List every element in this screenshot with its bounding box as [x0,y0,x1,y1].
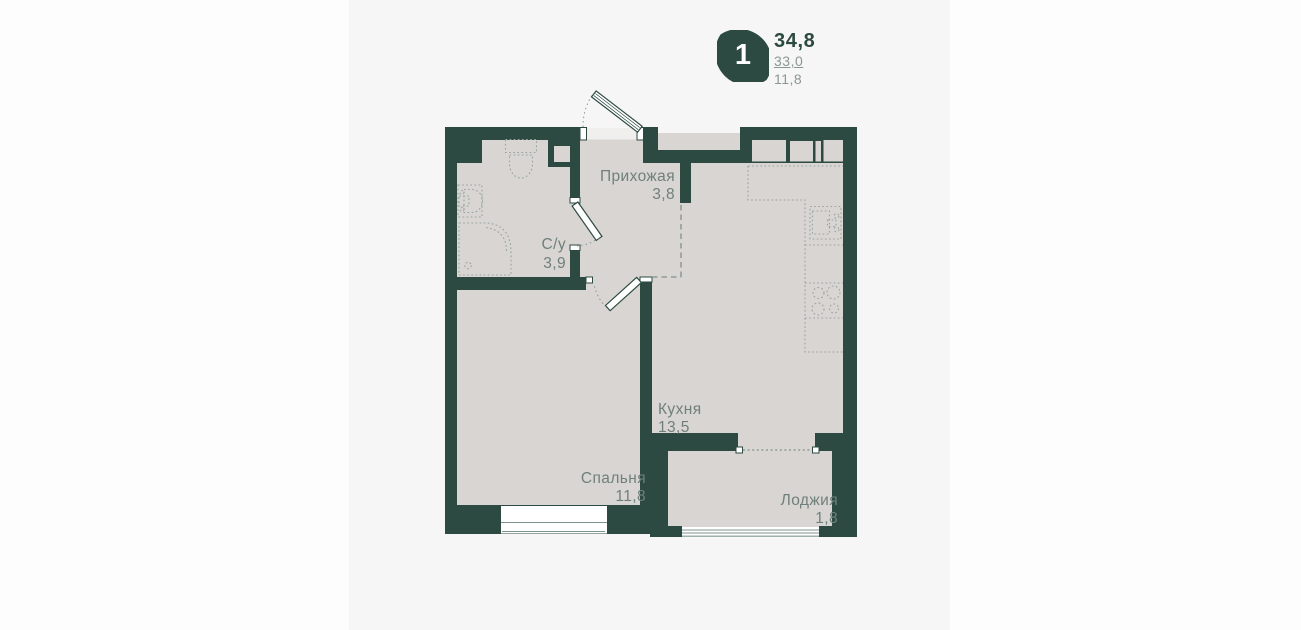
wall-top-hall [445,127,580,140]
shaft-4 [824,140,844,162]
label-bath-name: С/у [542,236,566,253]
wall-bath-right-lower [570,245,580,290]
shaft-1 [752,140,786,162]
wall-top-step [658,150,740,163]
label-loggia-name: Лоджия [781,492,838,509]
label-loggia-area: 1,8 [815,510,838,527]
wall-loggia-bottom-right [819,526,857,537]
bath-pier [457,140,482,163]
shaft-2 [790,141,813,162]
wall-right [843,127,857,433]
label-kitchen-name: Кухня [658,401,701,418]
wall-loggia-bottom-left [650,526,682,537]
floor-plan: Прихожая 3,8 С/у 3,9 Кухня 13,5 Спальня … [349,0,950,630]
entry-opening [587,128,638,140]
bath-shaft [554,146,570,162]
wall-bath-bedroom [445,277,586,290]
wall-left [445,127,457,534]
label-kitchen-area: 13,5 [658,419,690,436]
wall-corner-block [643,127,658,163]
bedroom-window [501,506,607,534]
shaft-3 [816,141,822,162]
label-bath-area: 3,9 [543,255,566,272]
label-bedroom-name: Спальня [581,470,646,487]
loggia-window [682,527,819,538]
wall-hall-right-piece [680,163,691,203]
label-hallway-name: Прихожая [600,168,675,185]
label-bedroom-area: 11,8 [615,488,646,505]
content-panel: 1 34,8 33,0 11,8 [349,0,950,630]
label-hallway-area: 3,8 [652,186,675,203]
